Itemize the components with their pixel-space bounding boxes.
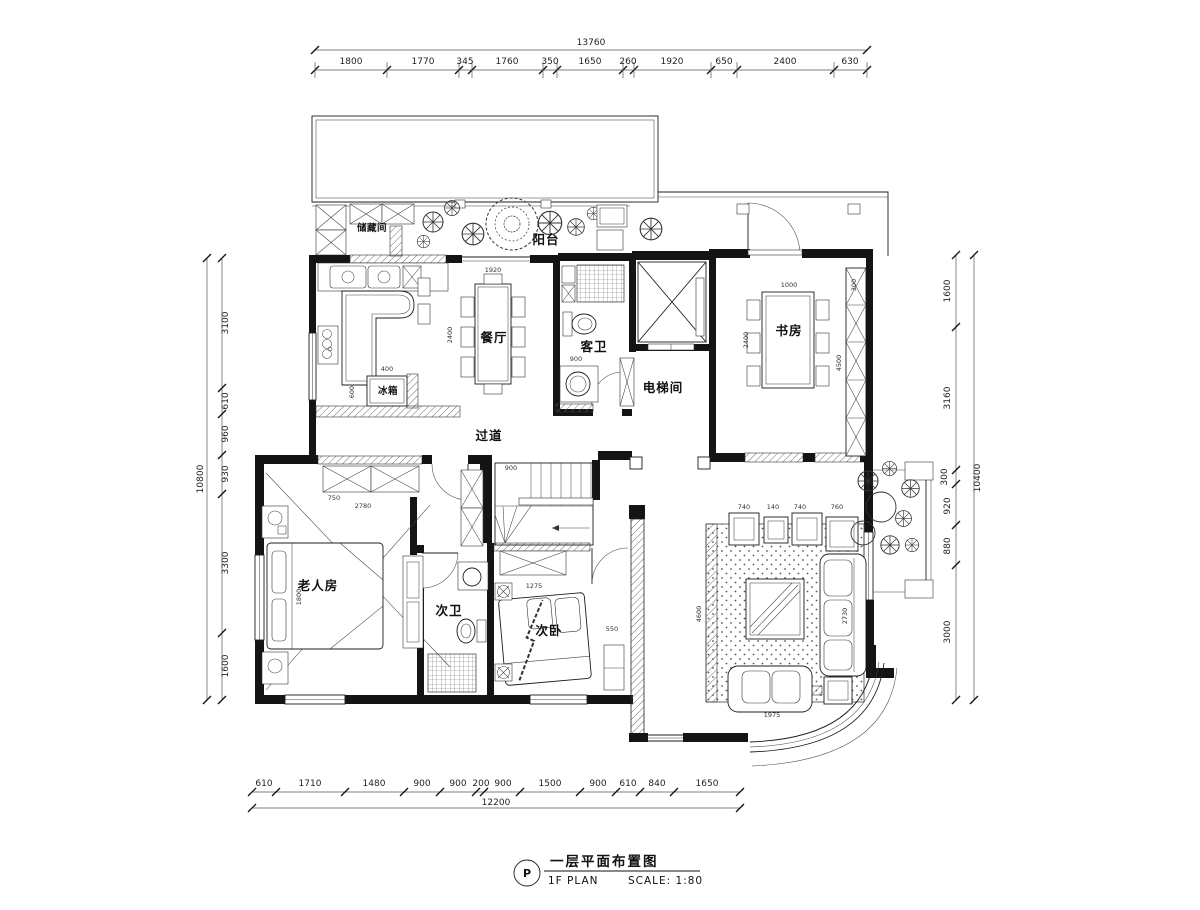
dim-bottom-1: 1710 [299,779,322,789]
ac-unit-bottom [495,664,512,681]
plan-scale: SCALE: 1:80 [628,875,703,887]
plan-title-en: 1F PLAN [548,875,599,887]
study-furniture [747,268,866,456]
coffee-table [746,579,804,639]
dim-left-4: 3300 [221,551,231,574]
dim-left-total: 10800 [196,464,206,493]
label-balcony: 阳台 [532,232,559,247]
label-study: 书房 [775,323,802,338]
dim-bottom-10: 840 [648,779,665,789]
dim-top-3: 1760 [496,57,519,67]
fdim-study-table-w: 1000 [781,281,798,289]
fdim-closet-w: 1275 [526,582,543,590]
dim-right-2: 300 [940,468,950,485]
dim-chain-bottom: 610 1710 1480 900 900 200 900 1500 900 6… [248,779,744,812]
dim-top-7: 1920 [661,57,684,67]
kitchen-window [309,333,316,400]
dim-left-0: 3100 [221,311,231,334]
dim-right-total: 10400 [973,463,983,492]
elder-bottom-window [285,695,345,704]
dim-chain-left: 3100 610 960 930 3300 1600 10800 [196,254,231,704]
loveseat [728,666,812,712]
bedroom2-bottom-window [530,695,587,704]
dim-right-3: 920 [943,497,953,514]
label-second-bedroom: 次卧 [535,623,562,638]
ac-unit-top [495,583,512,600]
dim-bottom-2: 1480 [363,779,386,789]
armchair-2 [764,517,788,543]
fdim-fridge-w: 400 [381,365,393,373]
plan-symbol: P [523,867,531,880]
dim-top-4: 350 [541,57,558,67]
label-elevator-hall: 电梯间 [643,380,684,395]
bookshelf [846,268,866,456]
dim-left-2: 960 [221,425,231,442]
title-block: P 一层平面布置图 1F PLAN SCALE: 1:80 [514,853,703,887]
armchair-1 [729,513,759,545]
dim-bottom-3: 900 [413,779,430,789]
dim-chain-right: 1600 3160 300 920 880 3000 10400 [940,251,983,704]
toilet [563,312,596,336]
fdim-dining-w: 1920 [485,266,502,274]
dim-top-1: 1770 [412,57,435,67]
dim-top-10: 630 [841,57,858,67]
armchair-3 [792,513,822,545]
side-table-bottom [824,677,852,704]
entry-door [748,203,802,255]
dim-right-4: 880 [943,537,953,554]
dim-top-0: 1800 [340,57,363,67]
dim-top-total: 13760 [577,38,606,48]
fdim-armchair-gap: 140 [767,503,779,511]
label-corridor: 过道 [475,428,502,443]
dim-top-5: 1650 [579,57,602,67]
dim-top-8: 650 [715,57,732,67]
dim-top-2: 345 [456,57,473,67]
dim-left-5: 1600 [221,654,231,677]
fdim-study-table-l: 2400 [742,332,750,349]
floor-plan-drawing: 储藏间 阳台 餐厅 客卫 电梯间 书房 过道 冰箱 老人房 次卫 次卧 1920… [0,0,1200,910]
second-bath-door [422,553,458,588]
label-dining: 餐厅 [479,330,507,345]
fdim-dresser-w: 550 [606,625,618,633]
second-bedroom-door [592,548,628,584]
bay-window [873,462,933,598]
dim-bottom-0: 610 [255,779,272,789]
fdim-bookshelf-l: 4500 [835,355,843,372]
fdim-sofa-l: 2730 [841,608,849,625]
dim-bottom-6: 900 [494,779,511,789]
fdim-stair-w: 900 [505,464,517,472]
wardrobe-row [323,466,419,492]
fdim-armchair-a: 740 [738,503,750,511]
elder-dresser [403,556,423,648]
washer [560,366,598,402]
dim-left-3: 930 [221,465,231,482]
label-guest-bath: 客卫 [579,339,607,354]
fdim-wardrobe-w: 2780 [355,502,372,510]
side-table-top [826,517,858,551]
nightstand-top [262,506,288,538]
fdim-bath-w: 900 [570,355,582,363]
dim-bottom-4: 900 [449,779,466,789]
fdim-armchair-b: 740 [794,503,806,511]
label-storage: 储藏间 [357,222,387,234]
nightstand-bottom [262,652,288,684]
second-bedroom-furniture [495,551,624,690]
dim-bottom-11: 1650 [696,779,719,789]
dim-right-5: 3000 [943,620,953,643]
dim-left-1: 610 [221,392,231,409]
fdim-bookshelf-d: 300 [850,279,858,291]
dim-bottom-5: 200 [472,779,489,789]
dim-top-6: 260 [619,57,636,67]
bed-2 [498,592,591,685]
fdim-kitchen-d: 600 [348,386,356,398]
toilet-2 [457,619,486,643]
dim-bottom-7: 1500 [539,779,562,789]
floor-plan-sheet: 储藏间 阳台 餐厅 客卫 电梯间 书房 过道 冰箱 老人房 次卫 次卧 1920… [0,0,1200,910]
stairs [461,463,593,546]
second-bath-fixtures [428,562,488,692]
label-second-bath: 次卫 [435,603,462,618]
elder-side-window [255,555,264,640]
dim-right-0: 1600 [943,279,953,302]
dim-chain-top: 1800 1770 345 1760 350 1650 260 1920 650… [311,38,871,78]
label-fridge: 冰箱 [378,385,398,397]
fdim-side-table: 760 [831,503,843,511]
fdim-rug-l: 4600 [695,606,703,623]
fdim-bed-w: 1800 [295,589,303,606]
fdim-loveseat-w: 1975 [764,711,781,719]
plan-title-cn: 一层平面布置图 [550,853,659,870]
dim-bottom-8: 900 [589,779,606,789]
fdim-wardrobe-d: 750 [328,494,340,502]
dim-bottom-total: 12200 [482,798,511,808]
dim-right-1: 3160 [943,386,953,409]
dim-top-9: 2400 [774,57,797,67]
fdim-dining-l: 2400 [446,327,454,344]
dim-bottom-9: 610 [619,779,636,789]
elder-bed [267,543,383,649]
